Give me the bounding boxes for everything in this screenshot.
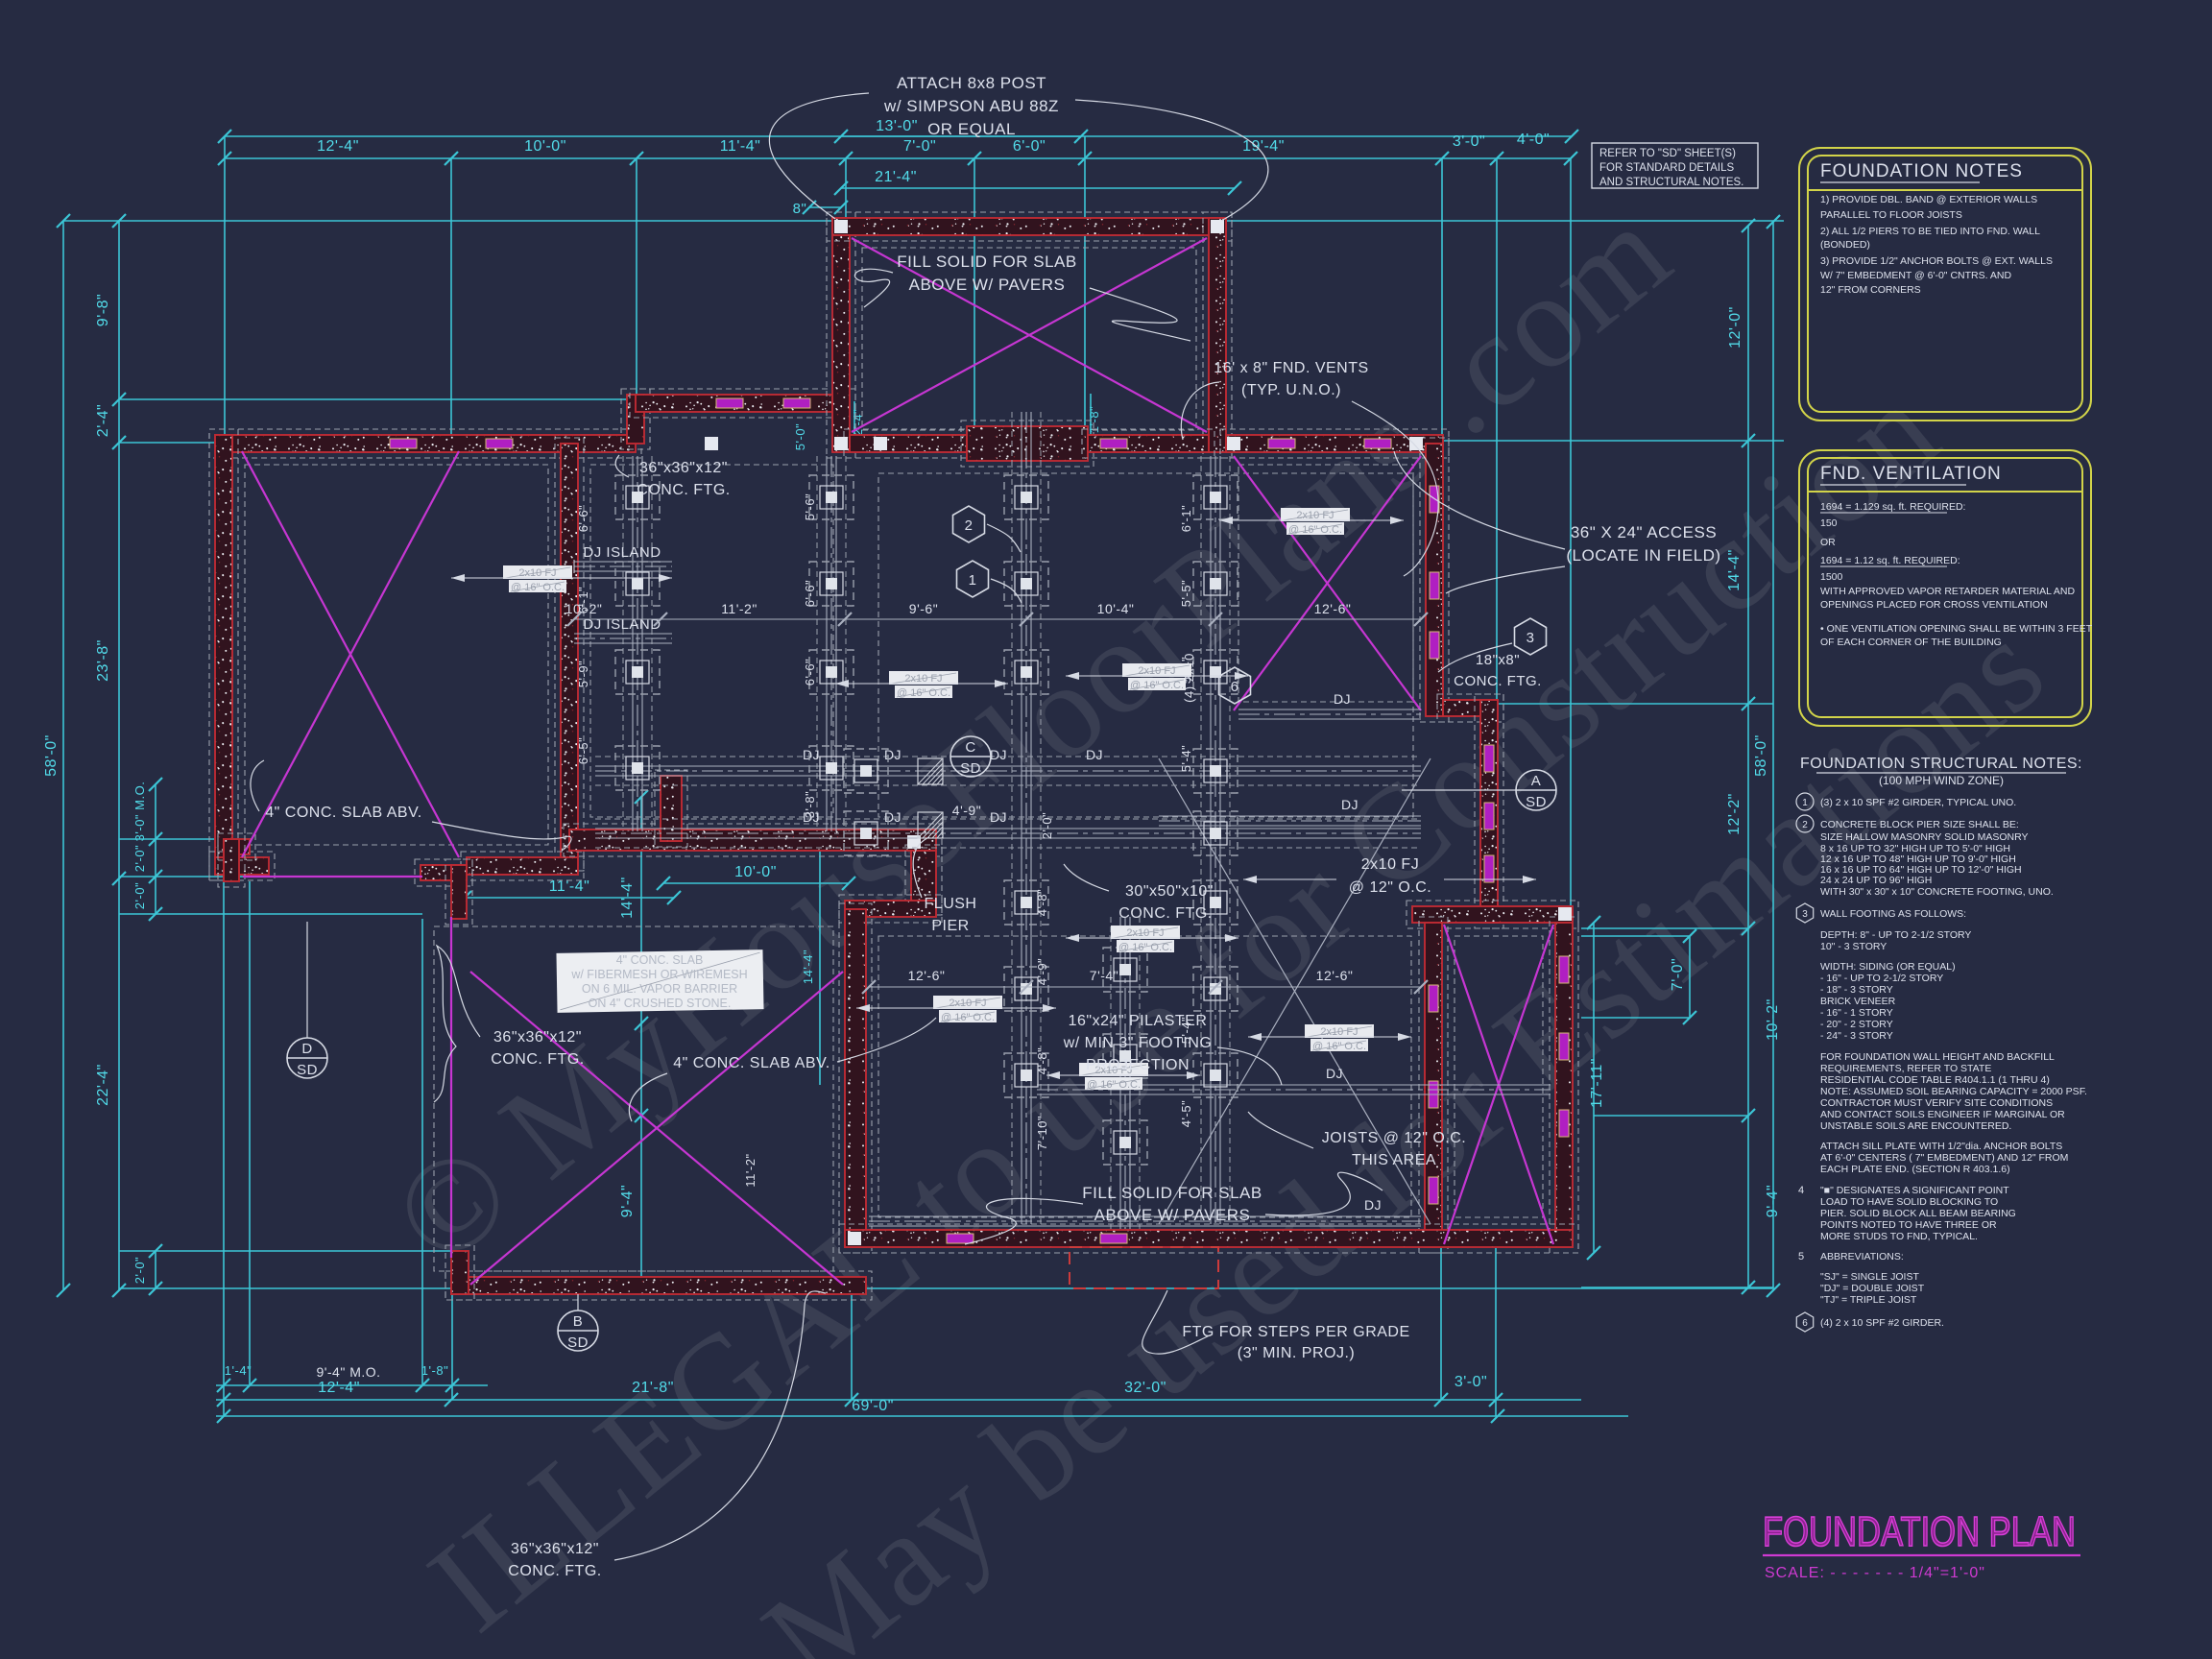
svg-text:3'-0" M.O.: 3'-0" M.O.: [132, 781, 147, 842]
svg-text:C: C: [965, 739, 975, 756]
svg-text:DJ: DJ: [1326, 1066, 1343, 1081]
svg-text:16' x 8" FND. VENTS: 16' x 8" FND. VENTS: [1214, 360, 1368, 376]
svg-text:D: D: [301, 1041, 312, 1057]
svg-text:4'-9": 4'-9": [1035, 958, 1049, 985]
svg-text:2) ALL 1/2 PIERS TO BE TIED IN: 2) ALL 1/2 PIERS TO BE TIED INTO FND. WA…: [1820, 226, 2040, 237]
svg-text:w/ FIBERMESH OR WIREMESH: w/ FIBERMESH OR WIREMESH: [570, 968, 747, 981]
svg-text:4" CONC. SLAB: 4" CONC. SLAB: [616, 953, 704, 967]
svg-text:2'-4": 2'-4": [95, 404, 111, 437]
svg-text:2'-0": 2'-0": [1040, 812, 1054, 839]
svg-text:WITH APPROVED VAPOR RETARDER M: WITH APPROVED VAPOR RETARDER MATERIAL AN…: [1820, 586, 2075, 597]
svg-text:2x10 FJ: 2x10 FJ: [1296, 510, 1334, 521]
svg-text:"DJ" = DOUBLE JOIST: "DJ" = DOUBLE JOIST: [1820, 1283, 1925, 1294]
svg-text:B: B: [573, 1313, 584, 1330]
svg-text:1694 = 1.129 sq. ft. REQUIRED:: 1694 = 1.129 sq. ft. REQUIRED:: [1820, 501, 1965, 513]
svg-text:22'-4": 22'-4": [95, 1064, 111, 1106]
svg-text:24 x 24 UP TO 96" HIGH: 24 x 24 UP TO 96" HIGH: [1820, 875, 1932, 886]
svg-text:OF EACH CORNER OF THE BUILDING: OF EACH CORNER OF THE BUILDING: [1820, 637, 2002, 648]
svg-text:OPENINGS PLACED FOR CROSS VENT: OPENINGS PLACED FOR CROSS VENTILATION: [1820, 599, 2048, 611]
svg-text:WIDTH: SIDING (OR EQUAL): WIDTH: SIDING (OR EQUAL): [1820, 961, 1956, 973]
svg-text:1500: 1500: [1820, 571, 1843, 583]
svg-text:23'-8": 23'-8": [95, 639, 111, 682]
svg-text:4'-5": 4'-5": [1179, 1100, 1193, 1127]
svg-text:- 20" - 2 STORY: - 20" - 2 STORY: [1820, 1019, 1893, 1030]
svg-text:36"x36"x12": 36"x36"x12": [493, 1029, 582, 1046]
svg-text:DJ: DJ: [1086, 747, 1103, 762]
svg-text:2x10 FJ: 2x10 FJ: [1361, 856, 1419, 873]
svg-text:SIZE HALLOW MASONRY: SIZE HALLOW MASONRY SOLID MASONRY: [1820, 831, 2028, 843]
svg-text:- 16" - 1 STORY: - 16" - 1 STORY: [1820, 1007, 1893, 1019]
svg-text:1: 1: [1802, 798, 1808, 808]
svg-text:- 16" - UP TO 2-1/2 STORY: - 16" - UP TO 2-1/2 STORY: [1820, 973, 1943, 984]
svg-text:DJ: DJ: [1364, 1197, 1382, 1213]
svg-text:(LOCATE IN FIELD): (LOCATE IN FIELD): [1566, 546, 1720, 565]
svg-text:2'-0": 2'-0": [132, 845, 147, 872]
svg-text:2: 2: [1802, 820, 1808, 830]
svg-text:14'-4": 14'-4": [801, 950, 815, 984]
svg-text:PROJECTION: PROJECTION: [1086, 1057, 1190, 1073]
svg-text:(3) 2 x 10 SPF #2 GIRDER, TYPI: (3) 2 x 10 SPF #2 GIRDER, TYPICAL UNO.: [1820, 797, 2016, 808]
svg-text:11'-2": 11'-2": [721, 601, 757, 616]
svg-text:6'-5": 6'-5": [576, 737, 590, 764]
svg-text:10" - 3 STORY: 10" - 3 STORY: [1820, 941, 1887, 952]
svg-text:3'-0": 3'-0": [1453, 133, 1485, 150]
svg-text:36"x36"x12": 36"x36"x12": [639, 460, 728, 476]
svg-text:58'-0": 58'-0": [1753, 734, 1769, 777]
svg-text:14'-4": 14'-4": [1726, 549, 1743, 591]
svg-text:DJ: DJ: [1341, 797, 1358, 812]
svg-text:2: 2: [965, 517, 974, 534]
svg-text:1) PROVIDE DBL. BAND @ EXTERIO: 1) PROVIDE DBL. BAND @ EXTERIOR WALLS: [1820, 194, 2037, 205]
svg-text:2'-0": 2'-0": [132, 882, 147, 909]
svg-text:5: 5: [1798, 1251, 1804, 1262]
svg-text:WALL FOOTING AS FOLLOWS:: WALL FOOTING AS FOLLOWS:: [1820, 908, 1966, 920]
svg-text:8": 8": [793, 201, 807, 217]
svg-text:PIER: PIER: [931, 918, 969, 934]
svg-text:"■" DESIGNATES A SIGNIFICANT P: "■" DESIGNATES A SIGNIFICANT POINT: [1820, 1185, 2009, 1196]
svg-text:6'-1": 6'-1": [1179, 505, 1193, 532]
svg-text:7'-10": 7'-10": [1035, 1116, 1049, 1150]
svg-text:2'-0": 2'-0": [132, 1257, 147, 1284]
svg-text:REQUIREMENTS, REFER TO STATE: REQUIREMENTS, REFER TO STATE: [1820, 1063, 1991, 1074]
svg-text:CONC. FTG.: CONC. FTG.: [508, 1563, 601, 1579]
svg-text:FND. VENTILATION: FND. VENTILATION: [1820, 464, 2002, 484]
svg-text:A: A: [1531, 773, 1542, 789]
svg-text:CONC. FTG.: CONC. FTG.: [1454, 673, 1542, 689]
svg-text:"TJ" = TRIPLE JOIST: "TJ" = TRIPLE JOIST: [1820, 1294, 1917, 1306]
svg-text:DJ: DJ: [990, 809, 1007, 825]
svg-text:MORE STUDS TO FND, TYPICAL.: MORE STUDS TO FND, TYPICAL.: [1820, 1231, 1978, 1242]
svg-text:3'-0": 3'-0": [1455, 1374, 1487, 1390]
svg-text:FOR STANDARD DETAILS: FOR STANDARD DETAILS: [1599, 162, 1734, 174]
svg-text:11'-4": 11'-4": [720, 138, 761, 155]
svg-text:DJ: DJ: [990, 747, 1007, 762]
svg-text:EACH PLATE END. (SECTION R 403: EACH PLATE END. (SECTION R 403.1.6): [1820, 1164, 2010, 1175]
svg-text:SD: SD: [1526, 794, 1547, 810]
svg-text:5'-6": 5'-6": [803, 493, 817, 520]
svg-text:RESIDENTIAL CODE TABLE R404.1.: RESIDENTIAL CODE TABLE R404.1.1 (1 THRU …: [1820, 1074, 2050, 1086]
svg-text:AND CONTACT SOILS ENGINEER IF: AND CONTACT SOILS ENGINEER IF MARGINAL O…: [1820, 1109, 2065, 1120]
svg-text:1'-4": 1'-4": [225, 1363, 252, 1378]
svg-text:(3" MIN. PROJ.): (3" MIN. PROJ.): [1238, 1345, 1356, 1361]
svg-text:6: 6: [1231, 679, 1239, 695]
svg-text:2x10 FJ: 2x10 FJ: [949, 998, 986, 1009]
svg-text:17'-11": 17'-11": [1589, 1058, 1605, 1108]
svg-text:12'-2": 12'-2": [1726, 793, 1743, 835]
svg-text:2x10 FJ: 2x10 FJ: [1126, 927, 1164, 939]
svg-text:4: 4: [1798, 1185, 1804, 1196]
svg-text:12'-4": 12'-4": [318, 1380, 360, 1396]
svg-text:ABBREVIATIONS:: ABBREVIATIONS:: [1820, 1251, 1904, 1262]
svg-text:6'-6": 6'-6": [576, 505, 590, 532]
svg-text:30"x50"x10": 30"x50"x10": [1125, 883, 1214, 900]
svg-text:(100 MPH WIND ZONE): (100 MPH WIND ZONE): [1879, 774, 2004, 787]
svg-text:ON 6 MIL. VAPOR BARRIER: ON 6 MIL. VAPOR BARRIER: [582, 982, 737, 996]
svg-text:4'-8": 4'-8": [1035, 1047, 1049, 1074]
svg-text:6'-0": 6'-0": [1013, 138, 1046, 155]
svg-text:"SJ" = SINGLE JOIST: "SJ" = SINGLE JOIST: [1820, 1271, 1919, 1283]
svg-text:ABOVE W/ PAVERS: ABOVE W/ PAVERS: [1094, 1206, 1251, 1224]
svg-text:12'-6": 12'-6": [1316, 968, 1354, 983]
svg-text:(TYP. U.N.O.): (TYP. U.N.O.): [1241, 382, 1341, 398]
svg-text:2x10 FJ: 2x10 FJ: [1320, 1026, 1358, 1038]
svg-text:32'-0": 32'-0": [1124, 1380, 1166, 1396]
svg-text:150: 150: [1820, 517, 1838, 529]
svg-text:OR: OR: [1820, 537, 1836, 548]
svg-text:1694 = 1.12 sq. ft. REQUIRED:: 1694 = 1.12 sq. ft. REQUIRED:: [1820, 555, 1960, 566]
svg-text:FTG FOR STEPS PER GRADE: FTG FOR STEPS PER GRADE: [1182, 1324, 1409, 1340]
svg-text:11'-2": 11'-2": [743, 1153, 757, 1187]
svg-text:2x10 FJ: 2x10 FJ: [1138, 665, 1175, 677]
svg-text:SCALE: - - - - - - - 1/4"=1'-: SCALE: - - - - - - - 1/4"=1'-0": [1765, 1565, 1985, 1581]
svg-text:DJ ISLAND: DJ ISLAND: [583, 544, 661, 561]
svg-text:21'-8": 21'-8": [632, 1380, 674, 1396]
svg-text:LOAD TO HAVE SOLID BLOCKING TO: LOAD TO HAVE SOLID BLOCKING TO: [1820, 1196, 1998, 1208]
svg-text:3: 3: [1802, 909, 1808, 920]
svg-text:58'-0": 58'-0": [43, 734, 60, 777]
svg-text:9'-4" M.O.: 9'-4" M.O.: [316, 1364, 380, 1380]
svg-text:6'-6": 6'-6": [803, 659, 817, 685]
svg-text:69'-0": 69'-0": [852, 1398, 894, 1414]
svg-text:4" CONC. SLAB ABV.: 4" CONC. SLAB ABV.: [673, 1055, 830, 1071]
svg-text:3'-8": 3'-8": [803, 791, 817, 818]
svg-text:5'-4": 5'-4": [1179, 745, 1193, 772]
svg-text:ON 4" CRUSHED STONE.: ON 4" CRUSHED STONE.: [589, 997, 732, 1010]
svg-text:7'-0": 7'-0": [1670, 958, 1686, 991]
svg-text:FOUNDATION PLAN: FOUNDATION PLAN: [1763, 1508, 2076, 1555]
svg-text:DJ: DJ: [803, 747, 820, 762]
svg-text:9'-4": 9'-4": [619, 1185, 636, 1217]
svg-text:9'-8": 9'-8": [95, 294, 111, 326]
svg-text:2x10 FJ: 2x10 FJ: [904, 673, 942, 685]
svg-text:ATTACH SILL PLATE WITH 1/2"dia: ATTACH SILL PLATE WITH 1/2"dia. ANCHOR B…: [1820, 1141, 2062, 1152]
svg-text:12'-6": 12'-6": [1314, 601, 1352, 616]
svg-text:POINTS NOTED TO HAVE THREE OR: POINTS NOTED TO HAVE THREE OR: [1820, 1219, 1997, 1231]
svg-text:W/ 7" EMBEDMENT @ 6'-0" CNTRS.: W/ 7" EMBEDMENT @ 6'-0" CNTRS. AND: [1820, 270, 2011, 281]
svg-text:10'-0": 10'-0": [734, 864, 777, 880]
svg-text:SD: SD: [567, 1334, 589, 1351]
svg-text:REFER TO "SD" SHEET(S): REFER TO "SD" SHEET(S): [1599, 148, 1736, 159]
svg-text:PIER. SOLID BLOCK ALL BEAM BEA: PIER. SOLID BLOCK ALL BEAM BEARING: [1820, 1208, 2016, 1219]
svg-text:CONTRACTOR MUST VERIFY SITE CO: CONTRACTOR MUST VERIFY SITE CONDITIONS: [1820, 1097, 2053, 1109]
svg-text:4'-8": 4'-8": [1035, 889, 1049, 916]
svg-text:OR EQUAL: OR EQUAL: [927, 120, 1016, 138]
svg-text:(BONDED): (BONDED): [1820, 239, 1870, 251]
svg-text:SD: SD: [297, 1062, 318, 1078]
svg-text:FILL SOLID FOR SLAB: FILL SOLID FOR SLAB: [897, 252, 1076, 271]
svg-text:CONC. FTG.: CONC. FTG.: [1118, 905, 1212, 922]
svg-text:w/ SIMPSON ABU 88Z: w/ SIMPSON ABU 88Z: [883, 97, 1059, 115]
svg-text:PARALLEL TO FLOOR JOISTS: PARALLEL TO FLOOR JOISTS: [1820, 209, 1962, 221]
svg-text:36"x36"x12": 36"x36"x12": [511, 1541, 599, 1557]
svg-text:3: 3: [1527, 630, 1535, 646]
svg-text:UNSTABLE SOILS ARE ENCOUNTERED: UNSTABLE SOILS ARE ENCOUNTERED.: [1820, 1120, 2011, 1132]
svg-text:w/ MIN 3" FOOTING: w/ MIN 3" FOOTING: [1063, 1035, 1213, 1051]
svg-text:CONC. FTG.: CONC. FTG.: [637, 482, 730, 498]
svg-text:ATTACH 8x8 POST: ATTACH 8x8 POST: [897, 74, 1046, 92]
svg-text:CONC. FTG.: CONC. FTG.: [491, 1051, 584, 1068]
svg-text:ABOVE W/ PAVERS: ABOVE W/ PAVERS: [909, 276, 1066, 294]
svg-text:5'-9": 5'-9": [576, 661, 590, 687]
svg-text:6'-1": 6'-1": [576, 587, 590, 613]
svg-text:THIS AREA: THIS AREA: [1352, 1152, 1436, 1168]
svg-text:FOR FOUNDATION WALL HEIGHT AND: FOR FOUNDATION WALL HEIGHT AND BACKFILL: [1820, 1051, 2055, 1063]
svg-text:NOTE: ASSUMED SOIL BEARING CAP: NOTE: ASSUMED SOIL BEARING CAPACITY = 20…: [1820, 1086, 2087, 1097]
svg-text:BRICK VENEER: BRICK VENEER: [1820, 996, 1896, 1007]
svg-text:(4) 2 x 10 SPF #2 GIRDER.: (4) 2 x 10 SPF #2 GIRDER.: [1820, 1317, 1944, 1329]
svg-text:10'-4": 10'-4": [1097, 601, 1135, 616]
svg-text:FLUSH: FLUSH: [925, 896, 977, 912]
svg-text:21'-4": 21'-4": [875, 169, 917, 185]
svg-text:6'-6": 6'-6": [803, 580, 817, 607]
svg-text:12'-6": 12'-6": [908, 968, 946, 983]
svg-text:13'-0": 13'-0": [876, 118, 918, 134]
svg-text:AT 6'-0" CENTERS ( 7" EMBEDMEN: AT 6'-0" CENTERS ( 7" EMBEDMENT) AND 12"…: [1820, 1152, 2068, 1164]
svg-text:7'-0": 7'-0": [903, 138, 936, 155]
svg-text:5'-0": 5'-0": [793, 423, 807, 450]
svg-text:FOUNDATION STRUCTURAL NOTES:: FOUNDATION STRUCTURAL NOTES:: [1800, 756, 2082, 772]
svg-text:9'-6": 9'-6": [909, 601, 938, 616]
svg-text:4'-9": 4'-9": [952, 803, 981, 818]
svg-text:1: 1: [969, 572, 977, 589]
svg-text:• ONE VENTILATION OPENING SHAL: • ONE VENTILATION OPENING SHALL BE WITHI…: [1820, 623, 2093, 635]
svg-text:SD: SD: [960, 760, 981, 777]
svg-text:4" CONC. SLAB ABV.: 4" CONC. SLAB ABV.: [265, 805, 422, 821]
svg-text:36" X 24" ACCESS: 36" X 24" ACCESS: [1571, 523, 1717, 541]
svg-text:16"x24" PILASTER: 16"x24" PILASTER: [1069, 1013, 1208, 1029]
svg-text:CONCRETE BLOCK PIER SIZE SHALL: CONCRETE BLOCK PIER SIZE SHALL BE:: [1820, 819, 2019, 830]
svg-text:DEPTH: 8" - UP TO 2-1/2 STOR: DEPTH: 8" - UP TO 2-1/2 STORY: [1820, 929, 1971, 941]
svg-text:12'-4": 12'-4": [317, 138, 359, 155]
svg-text:WITH 30" x 30" x 10" CONCRETE: WITH 30" x 30" x 10" CONCRETE FOOTING, U…: [1820, 886, 2054, 898]
svg-text:7'-4": 7'-4": [1090, 968, 1118, 983]
svg-text:12'-0": 12'-0": [1727, 306, 1743, 349]
svg-text:JOISTS @ 12" O.C.: JOISTS @ 12" O.C.: [1322, 1130, 1466, 1146]
svg-text:2x10 FJ: 2x10 FJ: [518, 567, 556, 579]
svg-text:4'-0": 4'-0": [1517, 132, 1550, 148]
svg-text:3) PROVIDE 1/2" ANCHOR BOLTS @: 3) PROVIDE 1/2" ANCHOR BOLTS @ EXT. WALL…: [1820, 255, 2053, 267]
svg-text:6: 6: [1802, 1318, 1808, 1329]
svg-text:- 24" - 3 STORY: - 24" - 3 STORY: [1820, 1030, 1893, 1042]
svg-text:12" FROM CORNERS: 12" FROM CORNERS: [1820, 284, 1921, 296]
svg-text:1'-8": 1'-8": [421, 1363, 448, 1378]
svg-text:10'-0": 10'-0": [524, 138, 566, 155]
svg-text:- 18" - 3 STORY: - 18" - 3 STORY: [1820, 984, 1893, 996]
svg-text:DJ: DJ: [1334, 691, 1351, 707]
svg-text:5'-5": 5'-5": [1179, 580, 1193, 607]
svg-text:FOUNDATION NOTES: FOUNDATION NOTES: [1820, 161, 2023, 181]
svg-text:@ 12" O.C.: @ 12" O.C.: [1349, 879, 1432, 896]
svg-text:18"x8": 18"x8": [1476, 652, 1520, 668]
svg-text:AND STRUCTURAL NOTES.: AND STRUCTURAL NOTES.: [1599, 177, 1743, 188]
svg-text:FILL SOLID FOR SLAB: FILL SOLID FOR SLAB: [1082, 1184, 1262, 1202]
